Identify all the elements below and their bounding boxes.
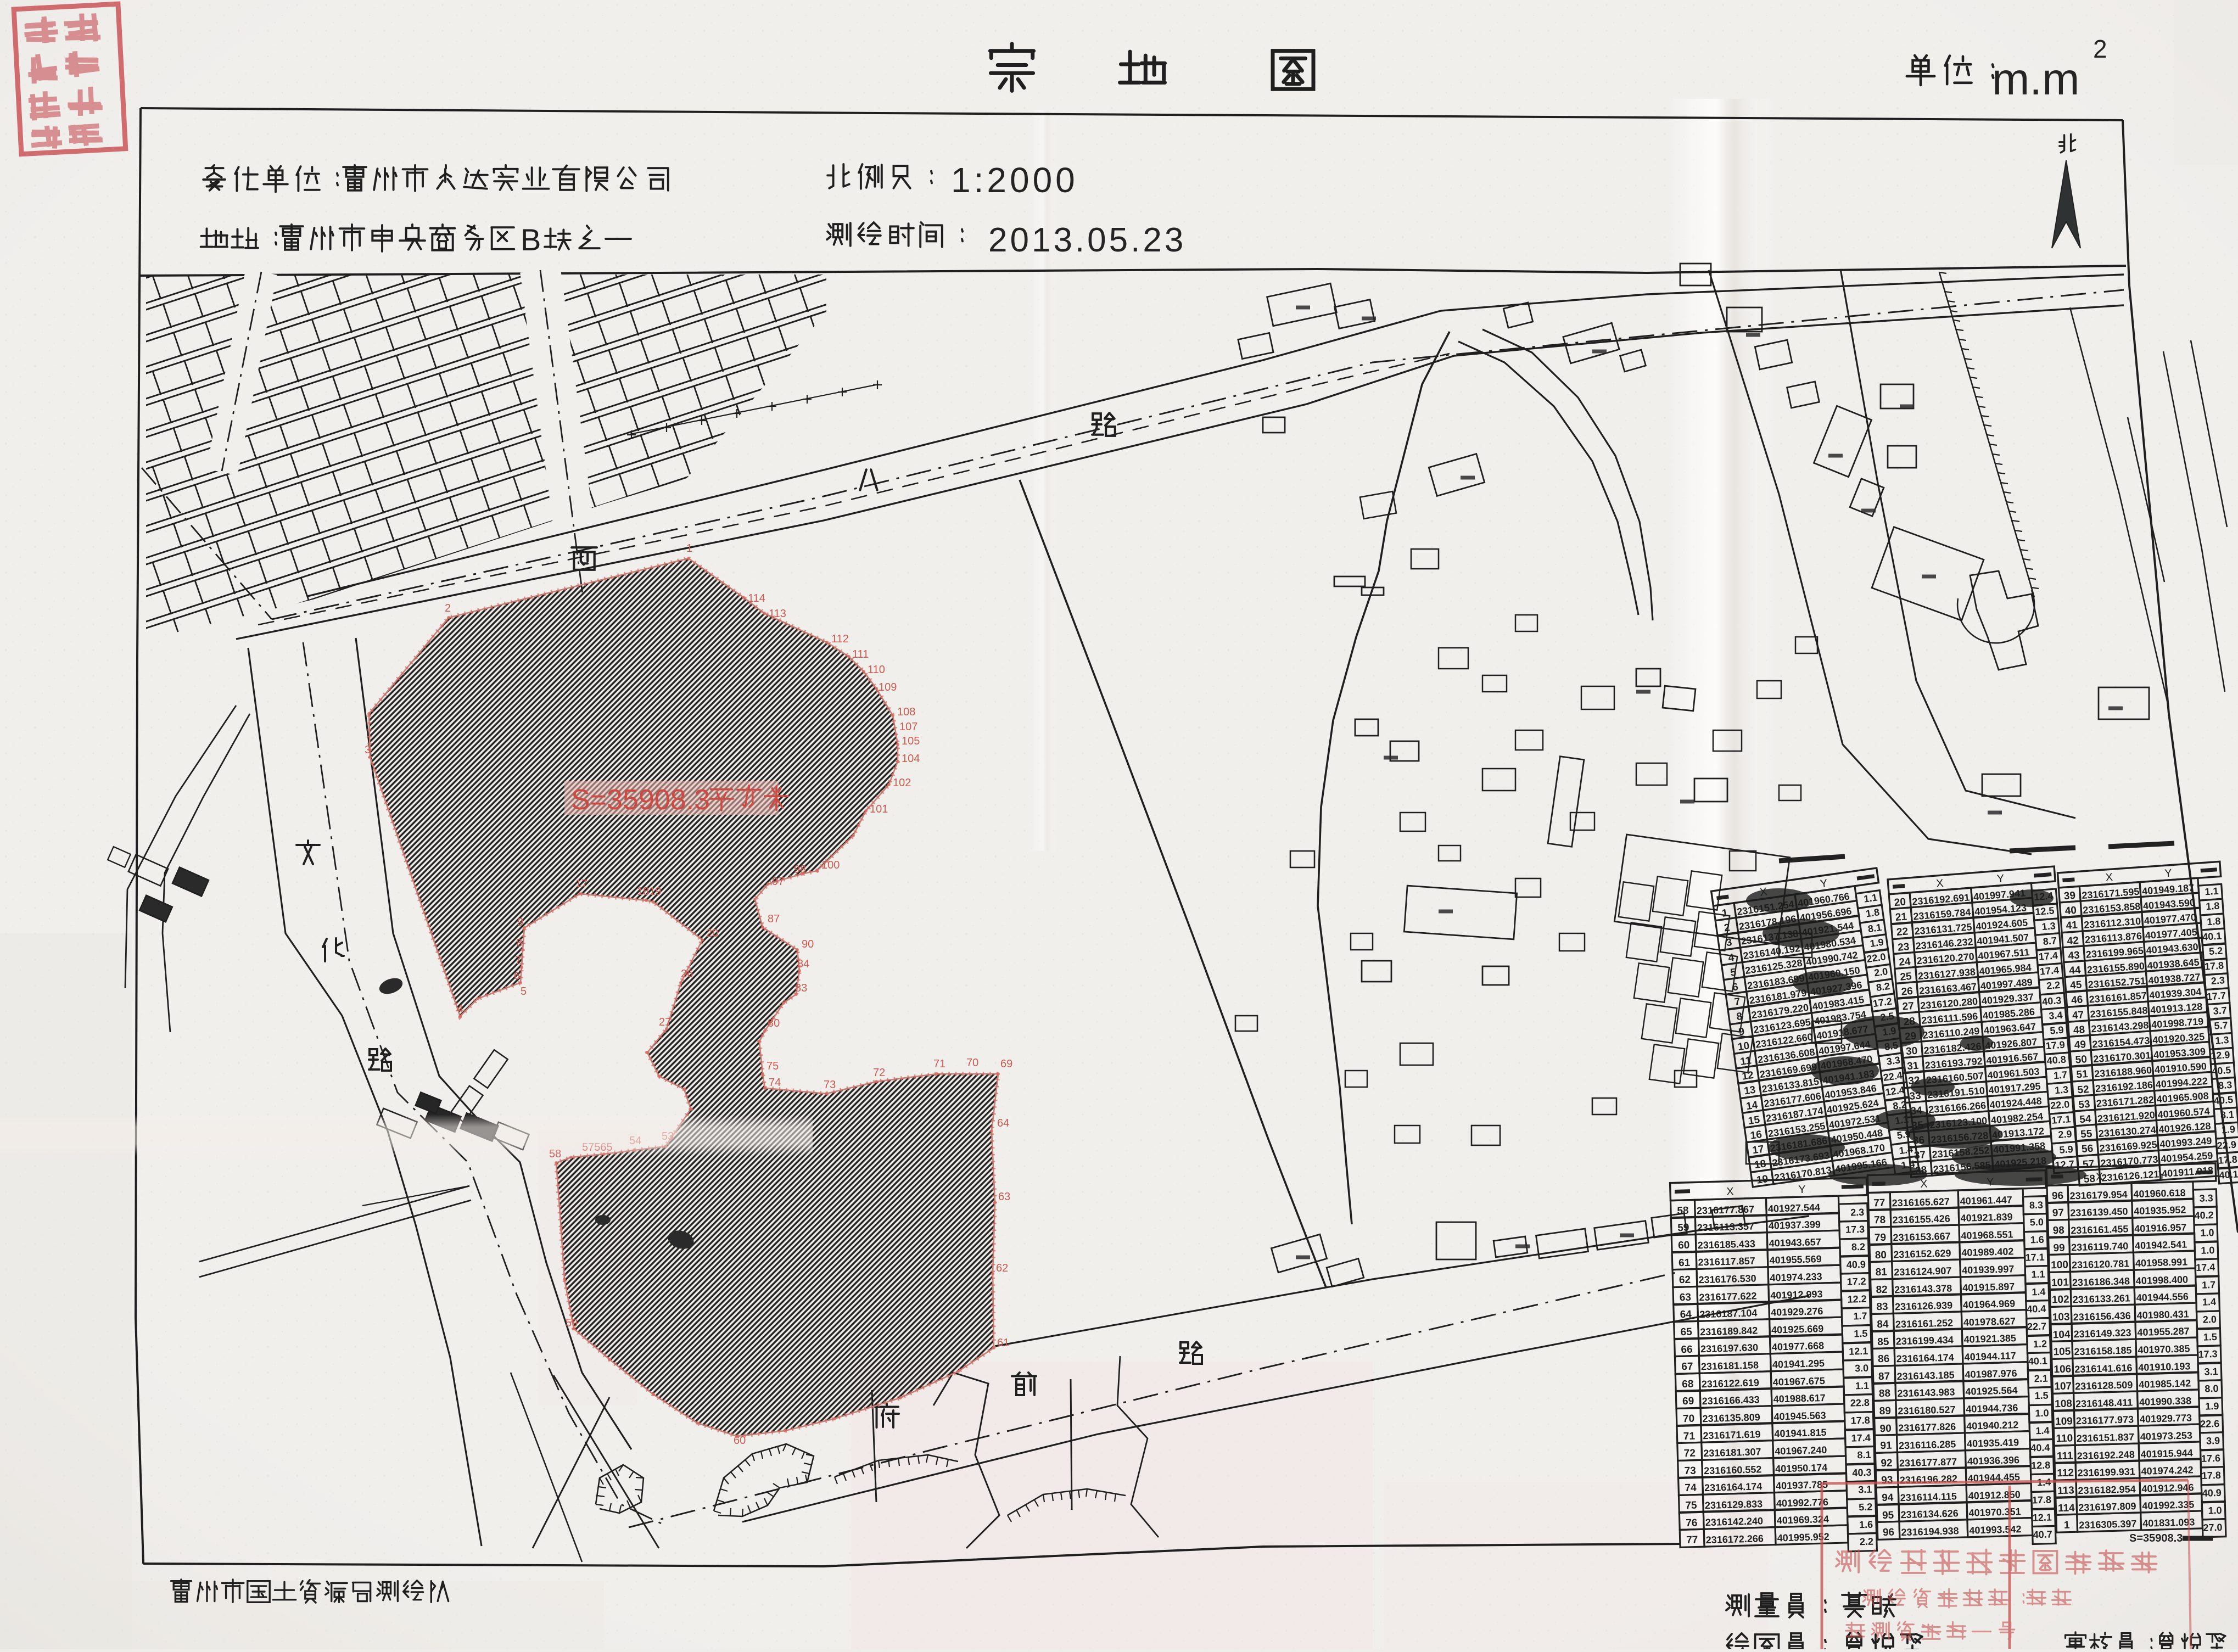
svg-text:401977.668: 401977.668 (1772, 1340, 1825, 1353)
svg-text:1: 1 (686, 542, 692, 555)
svg-text:401990.338: 401990.338 (2139, 1395, 2192, 1408)
svg-text:2316186.348: 2316186.348 (2072, 1275, 2130, 1288)
svg-text:401915.944: 401915.944 (2140, 1447, 2193, 1460)
svg-text:8.2: 8.2 (1851, 1241, 1866, 1253)
svg-text:3.0: 3.0 (1855, 1363, 1869, 1374)
svg-text:18: 18 (1754, 1158, 1767, 1171)
svg-text:401964.969: 401964.969 (1963, 1298, 2016, 1311)
svg-text:103: 103 (2052, 1311, 2070, 1323)
svg-text:55: 55 (2080, 1128, 2093, 1140)
svg-text:114: 114 (2058, 1502, 2075, 1514)
svg-text:104: 104 (2052, 1329, 2071, 1341)
svg-text:401927.544: 401927.544 (1768, 1202, 1821, 1214)
svg-text:401945.563: 401945.563 (1773, 1410, 1826, 1423)
svg-text:5.9: 5.9 (2059, 1144, 2074, 1156)
svg-text:401941.815: 401941.815 (1774, 1427, 1827, 1440)
svg-text:2.0: 2.0 (2203, 1314, 2217, 1325)
svg-text:401921.839: 401921.839 (1960, 1211, 2013, 1224)
svg-text:401944.556: 401944.556 (2136, 1291, 2189, 1303)
svg-text:1.7: 1.7 (1853, 1311, 1867, 1322)
svg-text:40.7: 40.7 (2033, 1529, 2052, 1541)
svg-text:52: 52 (2077, 1084, 2090, 1096)
svg-text:2316135.809: 2316135.809 (1702, 1412, 1760, 1424)
svg-text:92: 92 (1881, 1458, 1893, 1470)
svg-text:401993.542: 401993.542 (1969, 1524, 2022, 1536)
svg-text:17.1: 17.1 (2051, 1113, 2072, 1126)
svg-text:77: 77 (1686, 1535, 1698, 1547)
svg-text:1.2: 1.2 (2033, 1339, 2047, 1350)
svg-text:2316151.837: 2316151.837 (2077, 1431, 2135, 1444)
svg-text:22: 22 (1896, 926, 1909, 938)
svg-text:401950.174: 401950.174 (1775, 1462, 1828, 1475)
svg-text:56: 56 (2081, 1143, 2094, 1155)
svg-text:109: 109 (2055, 1415, 2073, 1427)
svg-text:62: 62 (996, 1262, 1008, 1274)
svg-text:71: 71 (1683, 1431, 1696, 1443)
svg-text:73: 73 (824, 1079, 836, 1091)
svg-text:12.1: 12.1 (2033, 1512, 2052, 1524)
svg-text:40.1: 40.1 (2028, 1356, 2048, 1367)
svg-text:47: 47 (2072, 1009, 2084, 1021)
svg-text:61: 61 (997, 1337, 1009, 1349)
svg-text:S=35908.3: S=35908.3 (571, 784, 710, 816)
svg-text:1.3: 1.3 (2215, 1034, 2229, 1046)
svg-text:2316199.434: 2316199.434 (1896, 1334, 1954, 1347)
svg-text:2316134.626: 2316134.626 (1900, 1508, 1959, 1520)
svg-text:22.9: 22.9 (2217, 1139, 2236, 1151)
svg-text:3.7: 3.7 (2213, 1005, 2227, 1017)
svg-text:1.1: 1.1 (1863, 892, 1878, 904)
svg-text:5.2: 5.2 (1859, 1502, 1873, 1513)
svg-text:40.1: 40.1 (2219, 1168, 2238, 1180)
svg-text:22.0: 22.0 (2050, 1099, 2070, 1111)
svg-text:12.8: 12.8 (2031, 1460, 2051, 1471)
svg-text:1.5: 1.5 (2034, 1390, 2049, 1402)
svg-text:401973.253: 401973.253 (2140, 1430, 2193, 1442)
svg-text:17: 17 (1752, 1144, 1765, 1157)
svg-text:401961.447: 401961.447 (1960, 1194, 2012, 1207)
svg-text:2316176.530: 2316176.530 (1698, 1273, 1756, 1285)
svg-text:2: 2 (2093, 35, 2107, 63)
svg-text:8.1: 8.1 (2220, 1109, 2234, 1121)
svg-text:1.8: 1.8 (2206, 900, 2220, 912)
svg-text:2316148.411: 2316148.411 (2075, 1397, 2133, 1409)
svg-text:2316126.939: 2316126.939 (1895, 1300, 1953, 1312)
svg-text:401831.093: 401831.093 (2142, 1516, 2195, 1529)
svg-text:3.3: 3.3 (1886, 1055, 1901, 1067)
svg-text:2013.05.23: 2013.05.23 (988, 221, 1186, 259)
svg-text:S=35908.3: S=35908.3 (2129, 1532, 2183, 1544)
svg-text:Y: Y (1987, 1176, 1994, 1188)
svg-text:61: 61 (1678, 1257, 1691, 1269)
svg-text:17.4: 17.4 (2196, 1262, 2215, 1273)
svg-text:17.2: 17.2 (1847, 1276, 1866, 1287)
svg-text:3: 3 (365, 744, 371, 756)
svg-text:99: 99 (2053, 1242, 2065, 1255)
svg-text:1: 1 (2064, 1520, 2071, 1531)
svg-text:8.0: 8.0 (2205, 1383, 2219, 1395)
svg-text:2316171.619: 2316171.619 (1703, 1429, 1761, 1441)
svg-text:2.3: 2.3 (2211, 975, 2225, 987)
svg-text:2316119.740: 2316119.740 (2071, 1240, 2129, 1253)
svg-text:96: 96 (2052, 1190, 2064, 1202)
svg-text:2316177.622: 2316177.622 (1699, 1290, 1757, 1303)
svg-text:104: 104 (902, 753, 920, 765)
svg-text:401970.351: 401970.351 (1968, 1506, 2021, 1519)
svg-text:4: 4 (457, 1003, 463, 1015)
svg-text:2: 2 (445, 602, 451, 614)
svg-text:17.4: 17.4 (2039, 965, 2060, 977)
svg-text:69: 69 (1000, 1058, 1012, 1070)
svg-text:114: 114 (748, 592, 765, 604)
svg-text:1.4: 1.4 (2202, 1296, 2217, 1308)
svg-text:5.9: 5.9 (2050, 1024, 2064, 1037)
svg-text:41: 41 (2066, 920, 2078, 932)
svg-text:5: 5 (521, 985, 527, 998)
svg-text:65: 65 (1680, 1326, 1692, 1339)
svg-text:2316143.983: 2316143.983 (1897, 1386, 1955, 1399)
svg-text:75: 75 (766, 1060, 779, 1072)
svg-text:2316143.185: 2316143.185 (1896, 1369, 1955, 1382)
svg-text:17.8: 17.8 (2202, 1470, 2222, 1481)
svg-text:85: 85 (1877, 1336, 1889, 1348)
svg-text:Y: Y (2164, 867, 2173, 880)
svg-text:58: 58 (1677, 1205, 1689, 1217)
svg-text:2316305.397: 2316305.397 (2079, 1518, 2137, 1531)
svg-text:72: 72 (1683, 1448, 1696, 1460)
svg-text:2316124.907: 2316124.907 (1894, 1265, 1952, 1278)
svg-text:100: 100 (821, 859, 840, 871)
svg-text:401939.997: 401939.997 (1962, 1263, 2015, 1276)
svg-text:73: 73 (1684, 1465, 1696, 1477)
svg-text:63: 63 (1680, 1292, 1692, 1304)
svg-text:17.3: 17.3 (2198, 1348, 2218, 1360)
svg-text:401910.193: 401910.193 (2138, 1360, 2191, 1373)
svg-text:2316182.954: 2316182.954 (2078, 1483, 2136, 1496)
svg-text:X: X (2096, 1171, 2103, 1183)
svg-text:106: 106 (2054, 1363, 2071, 1375)
svg-text:54: 54 (2079, 1113, 2092, 1125)
svg-text:401960.618: 401960.618 (2133, 1187, 2186, 1200)
svg-text:401958.991: 401958.991 (2135, 1256, 2188, 1269)
svg-text:17.8: 17.8 (1850, 1415, 1870, 1426)
svg-text:40.8: 40.8 (2046, 1054, 2067, 1067)
svg-text:2316164.174: 2316164.174 (1896, 1352, 1954, 1364)
svg-text:X: X (1726, 1185, 1734, 1197)
svg-text:109: 109 (879, 681, 897, 693)
svg-text:2316156.436: 2316156.436 (2073, 1310, 2131, 1323)
svg-text:401989.402: 401989.402 (1961, 1246, 2014, 1258)
svg-text:1.6: 1.6 (1859, 1519, 1873, 1531)
svg-text:401980.431: 401980.431 (2136, 1308, 2189, 1321)
svg-text:401929.773: 401929.773 (2140, 1412, 2192, 1425)
svg-text:1.0: 1.0 (2200, 1227, 2214, 1239)
svg-text:1.1: 1.1 (2205, 886, 2219, 898)
svg-text:112: 112 (2057, 1467, 2074, 1479)
svg-text:74: 74 (1685, 1482, 1697, 1494)
svg-text:113: 113 (2057, 1485, 2074, 1497)
svg-text:44: 44 (2069, 965, 2082, 977)
svg-text:111: 111 (2057, 1450, 2074, 1462)
svg-text:401940.212: 401940.212 (1966, 1419, 2019, 1432)
svg-text:401967.675: 401967.675 (1773, 1375, 1826, 1388)
svg-text:63: 63 (998, 1191, 1010, 1203)
svg-text:3.9: 3.9 (2206, 1435, 2220, 1447)
svg-text:23: 23 (1897, 941, 1910, 954)
svg-text:48: 48 (2073, 1024, 2085, 1036)
svg-text:2316113.357: 2316113.357 (1697, 1220, 1755, 1233)
svg-text:69: 69 (1682, 1396, 1694, 1408)
svg-text:40.1: 40.1 (2202, 930, 2222, 942)
svg-text:111: 111 (852, 648, 869, 660)
svg-text:90: 90 (1879, 1423, 1892, 1435)
svg-text:62: 62 (1679, 1274, 1691, 1286)
svg-text:79: 79 (1875, 1232, 1887, 1244)
svg-text:1.5: 1.5 (2203, 1331, 2217, 1343)
svg-text:X: X (2105, 871, 2113, 884)
svg-text:2316128.509: 2316128.509 (2075, 1379, 2133, 1392)
svg-text:80: 80 (1875, 1250, 1887, 1262)
svg-text:2316165.627: 2316165.627 (1892, 1196, 1950, 1208)
svg-text:2316181.307: 2316181.307 (1703, 1446, 1761, 1459)
svg-text:89: 89 (1879, 1405, 1891, 1418)
svg-text:60: 60 (1678, 1240, 1690, 1252)
svg-text:112: 112 (831, 633, 849, 645)
svg-text:1.1: 1.1 (1855, 1380, 1870, 1392)
svg-text:108: 108 (897, 706, 915, 718)
svg-text:27: 27 (659, 1016, 671, 1028)
svg-text:401935.419: 401935.419 (1967, 1437, 2019, 1449)
svg-text:1.7: 1.7 (2053, 1069, 2068, 1081)
svg-text:83: 83 (1876, 1301, 1888, 1313)
svg-text:2316161.252: 2316161.252 (1895, 1317, 1954, 1330)
svg-text:20: 20 (706, 927, 718, 939)
svg-text:71: 71 (933, 1058, 945, 1070)
svg-text:2.3: 2.3 (1850, 1207, 1865, 1218)
svg-text:25: 25 (1900, 971, 1912, 983)
svg-text:40.9: 40.9 (2202, 1487, 2222, 1499)
svg-text:107: 107 (899, 721, 917, 733)
svg-text:2316129.833: 2316129.833 (1705, 1498, 1763, 1511)
svg-text:2316177.826: 2316177.826 (1898, 1421, 1956, 1433)
svg-text:401970.385: 401970.385 (2138, 1343, 2190, 1356)
svg-text:17.4: 17.4 (2038, 950, 2058, 962)
svg-text:1.8: 1.8 (2207, 916, 2221, 928)
svg-text:2316166.433: 2316166.433 (1702, 1394, 1760, 1407)
svg-text:5.7: 5.7 (2214, 1020, 2228, 1032)
svg-text:24: 24 (1899, 956, 1911, 968)
svg-text:3.1: 3.1 (1858, 1484, 1872, 1496)
svg-text:72: 72 (873, 1067, 885, 1079)
svg-text:75: 75 (1685, 1500, 1697, 1512)
svg-text:96: 96 (1883, 1527, 1895, 1539)
svg-text:2.2: 2.2 (1860, 1536, 1874, 1548)
svg-text:2316177.877: 2316177.877 (1899, 1456, 1957, 1469)
svg-text:12.2: 12.2 (1847, 1293, 1867, 1305)
svg-text:37: 37 (1914, 1149, 1926, 1162)
svg-text:17.7: 17.7 (2206, 990, 2226, 1002)
svg-text:401944.117: 401944.117 (1964, 1350, 2016, 1363)
svg-text:1.4: 1.4 (2035, 1425, 2050, 1437)
svg-text:90: 90 (802, 938, 814, 950)
svg-text:2316160.552: 2316160.552 (1704, 1464, 1762, 1476)
svg-text:91: 91 (1880, 1440, 1892, 1452)
svg-text:401929.276: 401929.276 (1771, 1306, 1823, 1318)
svg-text:401925.669: 401925.669 (1771, 1323, 1824, 1336)
svg-text:8.3: 8.3 (2218, 1079, 2233, 1091)
svg-text:2.1: 2.1 (2034, 1373, 2048, 1385)
svg-text:1.3: 1.3 (2041, 920, 2056, 932)
svg-text:401974.233: 401974.233 (1770, 1271, 1822, 1284)
svg-text:2316197.809: 2316197.809 (2078, 1500, 2136, 1513)
svg-text:2316189.842: 2316189.842 (1700, 1325, 1758, 1337)
svg-text:74: 74 (769, 1077, 781, 1089)
svg-text:102: 102 (2052, 1293, 2069, 1306)
svg-text:Y: Y (1996, 872, 2005, 885)
svg-text:93: 93 (1881, 1475, 1893, 1487)
svg-text:401944.736: 401944.736 (1966, 1402, 2018, 1415)
svg-text:40.4: 40.4 (2030, 1442, 2050, 1454)
svg-text:100: 100 (2051, 1259, 2068, 1271)
svg-text:401941.295: 401941.295 (1772, 1358, 1825, 1370)
svg-text:1.6: 1.6 (2030, 1234, 2044, 1246)
svg-text:40.3: 40.3 (2042, 995, 2062, 1007)
svg-text:105: 105 (2053, 1346, 2071, 1358)
svg-text:8.3: 8.3 (2029, 1200, 2044, 1211)
svg-text:401985.142: 401985.142 (2139, 1377, 2191, 1390)
svg-text:1.8: 1.8 (1865, 906, 1881, 919)
svg-text:6: 6 (514, 970, 520, 982)
svg-text:2316122.619: 2316122.619 (1702, 1377, 1760, 1390)
svg-text:40.5: 40.5 (2212, 1065, 2231, 1077)
svg-text:31: 31 (1906, 1060, 1919, 1073)
svg-text:1.9: 1.9 (2205, 1401, 2219, 1412)
svg-text:8.2: 8.2 (1876, 981, 1891, 993)
svg-text:97: 97 (2052, 1207, 2064, 1219)
svg-text:40.3: 40.3 (1852, 1467, 1872, 1479)
svg-text:97: 97 (772, 876, 784, 888)
svg-text:22.7: 22.7 (2027, 1321, 2047, 1332)
svg-text:17.8: 17.8 (2032, 1494, 2052, 1506)
svg-text:42: 42 (2067, 935, 2079, 947)
svg-text:40.2: 40.2 (2194, 1209, 2214, 1221)
svg-text:81: 81 (1875, 1267, 1887, 1279)
svg-text:59: 59 (566, 1317, 578, 1329)
svg-text:12.5: 12.5 (2035, 905, 2055, 917)
svg-text:17: 17 (575, 878, 588, 890)
svg-text:401955.569: 401955.569 (1769, 1253, 1822, 1266)
svg-text:401987.976: 401987.976 (1965, 1368, 2017, 1380)
svg-text:82: 82 (1876, 1284, 1888, 1296)
svg-text:2316139.450: 2316139.450 (2070, 1206, 2128, 1218)
svg-text:78: 78 (1874, 1214, 1886, 1227)
svg-text:1.0: 1.0 (2035, 1408, 2049, 1419)
svg-text:2316181.158: 2316181.158 (1701, 1359, 1759, 1372)
svg-text:17.9: 17.9 (2045, 1039, 2066, 1052)
svg-text:2316179.954: 2316179.954 (2069, 1189, 2128, 1201)
svg-text:70: 70 (1683, 1413, 1695, 1425)
svg-text:43: 43 (2068, 950, 2080, 962)
svg-text:X: X (1935, 877, 1944, 890)
svg-text:2316158.185: 2316158.185 (2074, 1345, 2132, 1357)
svg-text:110: 110 (868, 664, 885, 676)
svg-text:40.5: 40.5 (2213, 1094, 2233, 1106)
svg-text:2316197.630: 2316197.630 (1700, 1342, 1759, 1354)
svg-text:67: 67 (1681, 1361, 1693, 1373)
svg-text:88: 88 (1879, 1388, 1891, 1400)
svg-text:17.8: 17.8 (2204, 960, 2224, 972)
svg-text:1.9: 1.9 (1869, 937, 1884, 949)
svg-text:1.0: 1.0 (2201, 1245, 2215, 1256)
svg-text:2.0: 2.0 (1873, 966, 1889, 978)
svg-text:401968.551: 401968.551 (1961, 1229, 2013, 1241)
svg-text:101: 101 (2051, 1276, 2069, 1289)
svg-text:2316177.973: 2316177.973 (2076, 1414, 2134, 1426)
svg-text:68: 68 (1682, 1379, 1694, 1391)
svg-text:401978.627: 401978.627 (1963, 1315, 2016, 1328)
svg-text:46: 46 (2071, 994, 2083, 1006)
svg-text:1.9: 1.9 (2221, 1124, 2235, 1136)
svg-text:101: 101 (870, 803, 888, 815)
svg-text:401916.957: 401916.957 (2134, 1222, 2187, 1234)
svg-text:401925.564: 401925.564 (1965, 1385, 2018, 1397)
svg-text:2316149.323: 2316149.323 (2073, 1327, 2131, 1340)
svg-text:20: 20 (1894, 897, 1906, 909)
svg-text:8.1: 8.1 (1867, 922, 1883, 934)
svg-text:2316192.248: 2316192.248 (2077, 1449, 2135, 1461)
svg-text:2316143.378: 2316143.378 (1894, 1283, 1952, 1295)
svg-text:1819: 1819 (637, 886, 662, 898)
svg-text:64: 64 (997, 1117, 1009, 1129)
svg-text:401992.335: 401992.335 (2142, 1499, 2195, 1511)
svg-text:2316187.104: 2316187.104 (1699, 1307, 1758, 1320)
svg-text:2316120.781: 2316120.781 (2072, 1258, 2130, 1270)
svg-text:2316141.616: 2316141.616 (2074, 1362, 2133, 1375)
svg-text:m.m: m.m (1992, 54, 2079, 104)
svg-text:39: 39 (2063, 890, 2076, 902)
svg-text:2316185.433: 2316185.433 (1697, 1238, 1755, 1251)
svg-text:86: 86 (1878, 1353, 1890, 1365)
svg-text:2316133.261: 2316133.261 (2073, 1292, 2131, 1305)
svg-text:8: 8 (516, 937, 522, 949)
svg-text:Y: Y (1798, 1184, 1806, 1196)
svg-text:17.3: 17.3 (1845, 1224, 1865, 1235)
svg-text:84: 84 (1877, 1319, 1889, 1331)
svg-text:5.0: 5.0 (2030, 1217, 2044, 1228)
svg-text:108: 108 (2055, 1398, 2072, 1410)
svg-text:94: 94 (1882, 1492, 1894, 1504)
svg-text:401943.657: 401943.657 (1769, 1236, 1821, 1249)
svg-text:110: 110 (2056, 1432, 2073, 1444)
svg-text:401942.541: 401942.541 (2135, 1239, 2187, 1251)
svg-text:401967.240: 401967.240 (1775, 1444, 1827, 1457)
svg-text:8.7: 8.7 (2043, 935, 2057, 947)
svg-text:80: 80 (768, 1017, 780, 1029)
svg-text:1.4: 1.4 (1898, 1144, 1914, 1156)
svg-text:401915.897: 401915.897 (1962, 1281, 2015, 1293)
svg-text:401912.993: 401912.993 (1770, 1289, 1823, 1301)
svg-text:1.5: 1.5 (1854, 1328, 1868, 1340)
svg-text:12: 12 (1741, 1069, 1754, 1083)
svg-text:2316116.285: 2316116.285 (1899, 1438, 1956, 1451)
svg-text:2316172.266: 2316172.266 (1705, 1533, 1764, 1545)
svg-text:13: 13 (1743, 1084, 1756, 1097)
svg-text:8.1: 8.1 (1857, 1449, 1871, 1461)
svg-text:105: 105 (902, 735, 920, 747)
svg-text:98: 98 (2052, 1225, 2064, 1237)
svg-text:87: 87 (1878, 1371, 1890, 1383)
svg-text:1.3: 1.3 (2054, 1084, 2069, 1096)
